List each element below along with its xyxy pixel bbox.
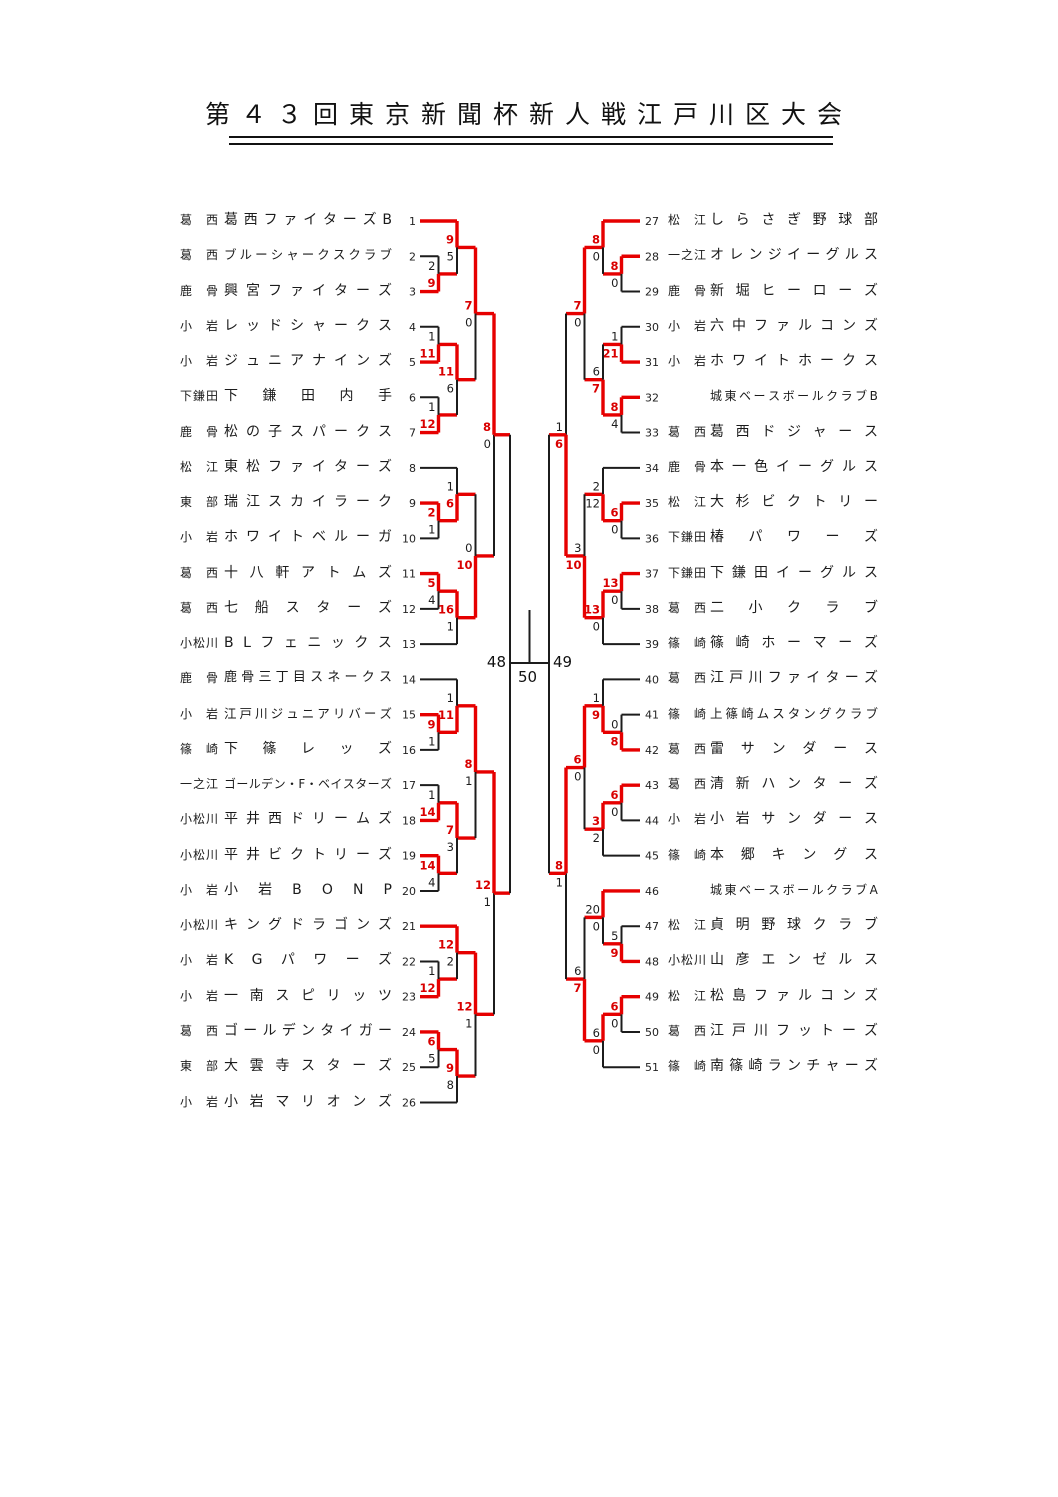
team-name: 松島ファルコンズ (710, 987, 878, 1005)
team-entry: 小松川平井ビクトリーズ (180, 846, 392, 864)
match-score: 11 (438, 708, 454, 722)
match-score: 1 (556, 875, 563, 889)
seed-number: 7 (409, 427, 416, 440)
seed-number: 46 (645, 885, 659, 898)
seed-number: 28 (645, 250, 659, 263)
team-district: 鹿骨 (668, 282, 706, 300)
team-entry: 小岩小岩サンダース (668, 810, 878, 828)
match-score: 6 (593, 1026, 600, 1040)
team-name: 下鎌田イーグルス (710, 564, 878, 582)
team-district: 篠崎 (668, 634, 706, 652)
game-number-label: 48 (487, 653, 506, 671)
team-district: 松江 (668, 916, 706, 934)
seed-number: 47 (645, 920, 659, 933)
team-entry: 篠崎下篠レッズ (180, 740, 392, 758)
match-score: 13 (602, 576, 618, 590)
team-district: 小岩 (180, 951, 218, 969)
team-name: ブルーシャークスクラブ (224, 246, 392, 264)
team-district: 東部 (180, 493, 218, 511)
match-score: 8 (447, 1078, 454, 1092)
match-score: 16 (438, 603, 454, 617)
seed-number: 29 (645, 286, 659, 299)
team-entry: 小岩江戸川ジュニアリバーズ (180, 705, 392, 723)
seed-number: 37 (645, 568, 659, 581)
team-district: 小岩 (668, 810, 706, 828)
team-district: 葛西 (180, 564, 218, 582)
match-score: 6 (447, 382, 454, 396)
match-score: 6 (593, 365, 600, 379)
team-name: 瑞江スカイラーク (224, 493, 392, 511)
team-name: 鹿骨三丁目スネークス (224, 669, 392, 687)
team-district: 小岩 (180, 317, 218, 335)
team-entry: 小岩レッドシャークス (180, 317, 392, 335)
team-name: ホワイトベルーガ (224, 528, 392, 546)
team-district: 小岩 (180, 352, 218, 370)
match-score: 8 (610, 734, 618, 748)
match-score: 7 (464, 299, 472, 313)
match-score: 0 (611, 523, 618, 537)
team-district: 松江 (180, 458, 218, 476)
match-score: 7 (573, 299, 581, 313)
team-name: 平井ビクトリーズ (224, 846, 392, 864)
match-score: 6 (610, 506, 618, 520)
team-entry: 松江大杉ビクトリー (668, 493, 878, 511)
match-score: 20 (585, 902, 600, 916)
seed-number: 4 (409, 321, 416, 334)
team-entry: 小岩小岩マリオンズ (180, 1093, 392, 1111)
match-score: 9 (427, 276, 435, 290)
team-entry: 小岩小岩BONP (180, 881, 392, 899)
team-entry: 小岩六中ファルコンズ (668, 317, 878, 335)
team-district: 葛西 (668, 740, 706, 758)
team-name: 下鎌田内手 (224, 387, 392, 405)
match-score: 9 (427, 717, 435, 731)
team-name: ゴールデン・F・ベイスターズ (224, 775, 392, 793)
team-district: 小松川 (180, 634, 218, 652)
team-name: 六中ファルコンズ (710, 317, 878, 335)
match-score: 7 (573, 981, 581, 995)
match-score: 11 (438, 365, 454, 379)
seed-number: 17 (402, 779, 416, 792)
seed-number: 1 (409, 215, 416, 228)
team-name: ホワイトホークス (710, 352, 878, 370)
team-name: 清新ハンターズ (710, 775, 878, 793)
team-entry: 松江東松ファイターズ (180, 458, 392, 476)
team-district: 篠崎 (668, 1057, 706, 1075)
team-entry: 葛西清新ハンターズ (668, 775, 878, 793)
match-score: 2 (447, 955, 454, 969)
seed-number: 39 (645, 638, 659, 651)
team-district: 東部 (180, 1057, 218, 1075)
match-score: 4 (428, 875, 435, 889)
team-name: ジュニアナインズ (224, 352, 392, 370)
team-name: 十八軒アトムズ (224, 564, 392, 582)
seed-number: 50 (645, 1026, 659, 1039)
seed-number: 22 (402, 955, 416, 968)
team-district: 小松川 (180, 916, 218, 934)
match-score: 1 (428, 964, 435, 978)
match-score: 10 (456, 558, 472, 572)
team-district: 小岩 (180, 987, 218, 1005)
seed-number: 26 (402, 1097, 416, 1110)
match-score: 6 (574, 964, 581, 978)
match-score: 0 (611, 1016, 618, 1030)
team-name: オレンジイーグルス (710, 246, 878, 264)
team-entry: 葛西十八軒アトムズ (180, 564, 392, 582)
match-score: 12 (419, 981, 435, 995)
seed-number: 44 (645, 814, 659, 827)
team-name: 東松ファイターズ (224, 458, 392, 476)
seed-number: 49 (645, 991, 659, 1004)
team-name: 貞明野球クラブ (710, 916, 878, 934)
team-name: 新堀ヒーローズ (710, 282, 878, 300)
match-score: 6 (610, 788, 618, 802)
seed-number: 51 (645, 1061, 659, 1074)
match-score: 1 (447, 620, 454, 634)
team-entry: 小松川平井西ドリームズ (180, 810, 392, 828)
team-entry: 下鎌田椿パワーズ (668, 528, 878, 546)
team-entry: 小岩ホワイトホークス (668, 352, 878, 370)
match-score: 1 (428, 400, 435, 414)
team-entry: 鹿骨興宮ファイターズ (180, 282, 392, 300)
team-entry: 鹿骨新堀ヒーローズ (668, 282, 878, 300)
match-score: 8 (592, 232, 600, 246)
team-entry: 松江松島ファルコンズ (668, 987, 878, 1005)
match-score: 2 (593, 831, 600, 845)
team-entry: 篠崎上篠崎ムスタングクラブ (668, 705, 878, 723)
team-entry: 葛西葛西ドジャース (668, 423, 878, 441)
team-name: 興宮ファイターズ (224, 282, 392, 300)
match-score: 0 (484, 437, 491, 451)
seed-number: 32 (645, 391, 659, 404)
team-name: しらさぎ野球部 (710, 211, 878, 229)
team-entry: 葛西ブルーシャークスクラブ (180, 246, 392, 264)
team-entry: 小松川山彦エンゼルス (668, 951, 878, 969)
match-score: 0 (593, 1043, 600, 1057)
team-district: 葛西 (180, 246, 218, 264)
team-district: 鹿骨 (180, 423, 218, 441)
match-score: 3 (574, 541, 581, 555)
match-score: 2 (427, 506, 435, 520)
seed-number: 11 (402, 568, 416, 581)
team-entry: 一之江ゴールデン・F・ベイスターズ (180, 775, 392, 793)
seed-number: 20 (402, 885, 416, 898)
team-entry: 小岩KGパワーズ (180, 951, 392, 969)
team-entry: 城東ベースボールクラブA (668, 881, 878, 899)
seed-number: 33 (645, 427, 659, 440)
team-district: 篠崎 (180, 740, 218, 758)
team-entry: 鹿骨本一色イーグルス (668, 458, 878, 476)
match-score: 12 (419, 417, 435, 431)
team-name: 江戸川フットーズ (710, 1022, 878, 1040)
match-score: 6 (446, 496, 454, 510)
match-score: 6 (555, 437, 563, 451)
team-district: 松江 (668, 211, 706, 229)
team-entry: 葛西江戸川ファイターズ (668, 669, 878, 687)
match-score: 4 (428, 593, 435, 607)
team-district: 一之江 (668, 246, 706, 264)
team-entry: 東部大雲寺スターズ (180, 1057, 392, 1075)
team-district: 松江 (668, 493, 706, 511)
team-district: 葛西 (180, 211, 218, 229)
match-score: 8 (483, 420, 491, 434)
team-entry: 葛西江戸川フットーズ (668, 1022, 878, 1040)
match-score: 0 (611, 276, 618, 290)
match-score: 12 (585, 496, 600, 510)
match-score: 14 (419, 805, 435, 819)
seed-number: 45 (645, 850, 659, 863)
match-score: 0 (574, 316, 581, 330)
match-score: 1 (611, 329, 618, 343)
team-name: 小岩サンダース (710, 810, 878, 828)
match-score: 7 (446, 823, 454, 837)
team-entry: 篠崎篠崎ホーマーズ (668, 634, 878, 652)
match-score: 9 (446, 232, 454, 246)
seed-number: 25 (402, 1061, 416, 1074)
match-score: 1 (484, 895, 491, 909)
match-score: 8 (464, 757, 472, 771)
team-district: 鹿骨 (180, 669, 218, 687)
team-entry: 小岩一南スピリッツ (180, 987, 392, 1005)
match-score: 1 (428, 788, 435, 802)
team-district (668, 881, 706, 899)
match-score: 7 (592, 382, 600, 396)
team-name: 小岩BONP (224, 881, 392, 899)
seed-number: 36 (645, 532, 659, 545)
match-score: 10 (565, 558, 581, 572)
team-entry: 小岩ホワイトベルーガ (180, 528, 392, 546)
team-entry: 篠崎南篠崎ランチャーズ (668, 1057, 878, 1075)
match-score: 6 (427, 1035, 435, 1049)
match-score: 3 (592, 814, 600, 828)
seed-number: 31 (645, 356, 659, 369)
team-entry: 下鎌田下鎌田内手 (180, 387, 392, 405)
team-district: 小岩 (180, 528, 218, 546)
team-name: 椿パワーズ (710, 528, 878, 546)
seed-number: 3 (409, 286, 416, 299)
seed-number: 8 (409, 462, 416, 475)
match-score: 3 (447, 840, 454, 854)
team-name: 本一色イーグルス (710, 458, 878, 476)
team-district: 葛西 (668, 1022, 706, 1040)
team-name: 城東ベースボールクラブA (710, 881, 878, 899)
team-entry: 葛西葛西ファイターズB (180, 211, 392, 229)
match-score: 14 (419, 858, 435, 872)
seed-number: 40 (645, 673, 659, 686)
match-score: 5 (428, 1052, 435, 1066)
team-district: 小岩 (180, 1093, 218, 1111)
match-score: 1 (556, 420, 563, 434)
match-score: 5 (447, 249, 454, 263)
seed-number: 42 (645, 744, 659, 757)
match-score: 1 (428, 523, 435, 537)
team-name: 南篠崎ランチャーズ (710, 1057, 878, 1075)
team-entry: 松江貞明野球クラブ (668, 916, 878, 934)
team-district: 下鎌田 (668, 564, 706, 582)
match-score: 8 (610, 400, 618, 414)
team-district: 葛西 (668, 423, 706, 441)
team-entry: 城東ベースボールクラブB (668, 387, 878, 405)
seed-number: 27 (645, 215, 659, 228)
match-score: 11 (419, 346, 435, 360)
seed-number: 24 (402, 1026, 416, 1039)
match-score: 9 (592, 708, 600, 722)
match-score: 2 (428, 259, 435, 273)
team-name: 江戸川ジュニアリバーズ (224, 705, 392, 723)
team-district: 葛西 (180, 599, 218, 617)
match-score: 2 (593, 479, 600, 493)
team-district: 小岩 (180, 881, 218, 899)
match-score: 5 (427, 576, 435, 590)
team-name: レッドシャークス (224, 317, 392, 335)
team-name: 下篠レッズ (224, 740, 392, 758)
team-name: キングドラゴンズ (224, 916, 392, 934)
seed-number: 14 (402, 673, 416, 686)
match-score: 0 (593, 620, 600, 634)
team-district (668, 387, 706, 405)
match-score: 1 (428, 734, 435, 748)
seed-number: 13 (402, 638, 416, 651)
team-entry: 篠崎本郷キングス (668, 846, 878, 864)
team-district: 篠崎 (668, 846, 706, 864)
match-score: 12 (475, 878, 491, 892)
team-name: 七船スターズ (224, 599, 392, 617)
match-score: 0 (611, 593, 618, 607)
team-name: 江戸川ファイターズ (710, 669, 878, 687)
bracket-diagram: 1234567891011121314151617181920212223242… (0, 0, 1058, 1497)
team-district: 小松川 (180, 810, 218, 828)
match-score: 9 (446, 1061, 454, 1075)
seed-number: 21 (402, 920, 416, 933)
seed-number: 2 (409, 250, 416, 263)
team-name: BLフェニックス (224, 634, 392, 652)
match-score: 1 (428, 329, 435, 343)
team-district: 篠崎 (668, 705, 706, 723)
seed-number: 38 (645, 603, 659, 616)
seed-number: 23 (402, 991, 416, 1004)
team-district: 一之江 (180, 775, 218, 793)
match-score: 21 (602, 346, 618, 360)
match-score: 13 (584, 603, 600, 617)
team-entry: 鹿骨松の子スパークス (180, 423, 392, 441)
team-name: 雷サンダース (710, 740, 878, 758)
match-score: 0 (611, 717, 618, 731)
team-district: 鹿骨 (668, 458, 706, 476)
team-entry: 一之江オレンジイーグルス (668, 246, 878, 264)
team-name: 大杉ビクトリー (710, 493, 878, 511)
match-score: 8 (555, 858, 563, 872)
team-name: 松の子スパークス (224, 423, 392, 441)
seed-number: 19 (402, 850, 416, 863)
team-district: 鹿骨 (180, 282, 218, 300)
seed-number: 9 (409, 497, 416, 510)
team-district: 小岩 (180, 705, 218, 723)
seed-number: 10 (402, 532, 416, 545)
match-score: 4 (611, 417, 618, 431)
match-score: 6 (610, 999, 618, 1013)
team-entry: 松江しらさぎ野球部 (668, 211, 878, 229)
match-score: 1 (447, 691, 454, 705)
team-entry: 葛西七船スターズ (180, 599, 392, 617)
team-district: 下鎌田 (180, 387, 218, 405)
match-score: 6 (573, 753, 581, 767)
seed-number: 48 (645, 955, 659, 968)
match-score: 0 (465, 541, 472, 555)
team-district: 葛西 (668, 599, 706, 617)
team-entry: 葛西ゴールデンタイガー (180, 1022, 392, 1040)
team-name: 葛西ドジャース (710, 423, 878, 441)
seed-number: 30 (645, 321, 659, 334)
team-name: 一南スピリッツ (224, 987, 392, 1005)
match-score: 12 (438, 938, 454, 952)
seed-number: 6 (409, 391, 416, 404)
team-name: 二小クラブ (710, 599, 878, 617)
seed-number: 15 (402, 709, 416, 722)
team-entry: 東部瑞江スカイラーク (180, 493, 392, 511)
team-district: 小岩 (668, 317, 706, 335)
match-score: 1 (465, 1016, 472, 1030)
team-district: 松江 (668, 987, 706, 1005)
match-score: 0 (574, 770, 581, 784)
seed-number: 35 (645, 497, 659, 510)
team-district: 小岩 (668, 352, 706, 370)
team-entry: 葛西二小クラブ (668, 599, 878, 617)
match-score: 1 (447, 479, 454, 493)
match-score: 0 (465, 316, 472, 330)
match-score: 12 (456, 999, 472, 1013)
team-name: 上篠崎ムスタングクラブ (710, 705, 878, 723)
team-entry: 葛西雷サンダース (668, 740, 878, 758)
tournament-bracket-page: 第４３回東京新聞杯新人戦江戸川区大会 123456789101112131415… (0, 0, 1058, 1497)
team-name: 篠崎ホーマーズ (710, 634, 878, 652)
match-score: 0 (593, 249, 600, 263)
team-name: 平井西ドリームズ (224, 810, 392, 828)
seed-number: 43 (645, 779, 659, 792)
match-score: 9 (610, 946, 618, 960)
match-score: 5 (611, 929, 618, 943)
team-name: 葛西ファイターズB (224, 211, 392, 229)
team-entry: 小岩ジュニアナインズ (180, 352, 392, 370)
team-entry: 小松川キングドラゴンズ (180, 916, 392, 934)
match-score: 1 (593, 691, 600, 705)
team-name: 小岩マリオンズ (224, 1093, 392, 1111)
match-score: 1 (465, 774, 472, 788)
seed-number: 16 (402, 744, 416, 757)
team-name: 城東ベースボールクラブB (710, 387, 878, 405)
game-number-label: 49 (553, 653, 572, 671)
seed-number: 34 (645, 462, 659, 475)
team-district: 葛西 (668, 775, 706, 793)
team-district: 小松川 (180, 846, 218, 864)
game-number-label: 50 (518, 668, 537, 686)
team-name: ゴールデンタイガー (224, 1022, 392, 1040)
team-district: 葛西 (180, 1022, 218, 1040)
seed-number: 12 (402, 603, 416, 616)
seed-number: 5 (409, 356, 416, 369)
team-district: 下鎌田 (668, 528, 706, 546)
team-entry: 下鎌田下鎌田イーグルス (668, 564, 878, 582)
seed-number: 41 (645, 709, 659, 722)
match-score: 8 (610, 259, 618, 273)
team-name: 山彦エンゼルス (710, 951, 878, 969)
seed-number: 18 (402, 814, 416, 827)
team-name: 本郷キングス (710, 846, 878, 864)
match-score: 0 (611, 805, 618, 819)
match-score: 0 (593, 919, 600, 933)
team-entry: 鹿骨鹿骨三丁目スネークス (180, 669, 392, 687)
team-district: 葛西 (668, 669, 706, 687)
team-name: KGパワーズ (224, 951, 392, 969)
